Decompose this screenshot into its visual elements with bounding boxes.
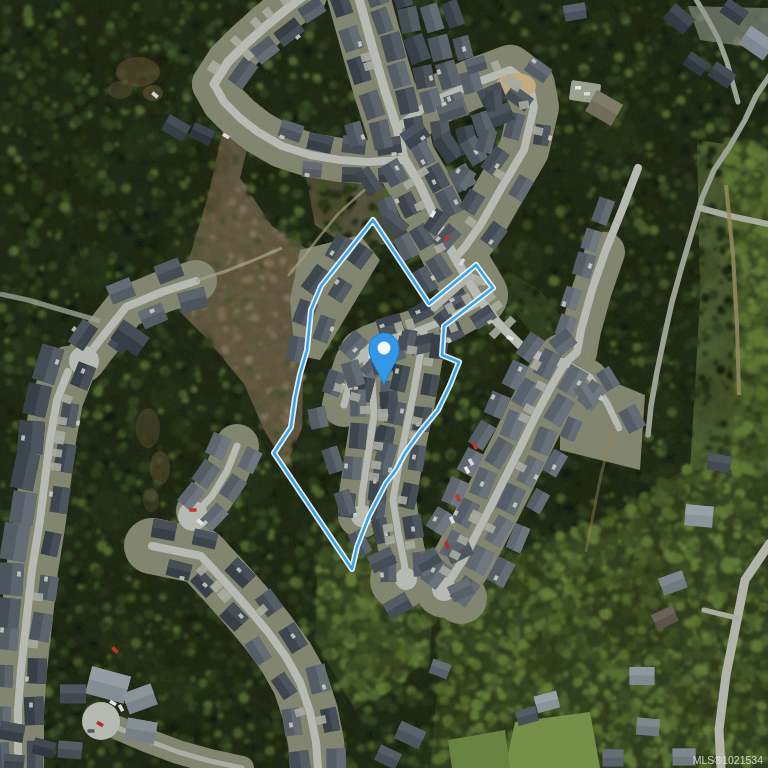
svg-text:MLS®1021534: MLS®1021534: [693, 754, 763, 766]
